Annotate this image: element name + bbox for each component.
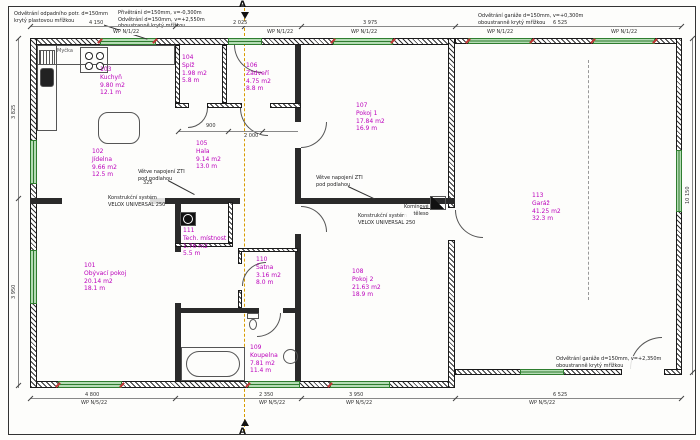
room-label-102: 102 Jídelna 9.66 m2 12.5 m (92, 148, 117, 179)
dim-label: 6 525 (552, 393, 568, 398)
dim-label: 325 (142, 181, 154, 186)
note-line: pod podlahou (316, 182, 363, 189)
room-number: 109 (250, 344, 278, 352)
window-mark: WP N/5/22 (80, 401, 108, 406)
wall-pantry-left (175, 45, 180, 103)
room-label-104: 104 Spíž 1.98 m2 5.8 m (182, 54, 207, 85)
wall-tech-right (228, 202, 233, 243)
room-label-113: 113 Garáž 41.25 m2 32.3 m (532, 192, 561, 223)
dim-chain-top (30, 26, 682, 27)
window-bath-bottom (248, 381, 300, 388)
floor-plan-sheet: A A (0, 0, 700, 440)
room-number: 103 (100, 66, 125, 74)
leader-line (420, 208, 430, 209)
section-arrow-top-icon (241, 12, 249, 19)
note-line: Přivětrání d=150mm, v=-0,300m (118, 10, 205, 17)
room-number: 104 (182, 54, 207, 62)
room-area: 3.16 m2 (256, 272, 281, 280)
room-name: Šatna (256, 264, 281, 272)
dim-label: 4 800 (84, 393, 100, 398)
room-area: 7.81 m2 (250, 360, 278, 368)
note-line: těleso (404, 211, 429, 218)
room-perimeter: 13.0 m (196, 163, 221, 171)
toilet-bowl-icon (249, 319, 257, 330)
dim-label: 2 350 (258, 393, 274, 398)
wall-house-garage-upper (448, 38, 455, 208)
room-area: 41.25 m2 (532, 208, 561, 216)
section-marker-top: A (239, 1, 246, 10)
note-zti-right: Větve napojení ZTI pod podlahou (316, 175, 363, 188)
room-name: Tech. místnost (183, 235, 226, 243)
wall-bath-top-b (283, 308, 295, 313)
dim-chain-left (18, 38, 19, 388)
note-dishwasher: Myčka (57, 48, 73, 55)
wall-pantry-bottom-a (175, 103, 189, 108)
room-label-105: 105 Hala 9.14 m2 13.0 m (196, 140, 221, 171)
room-name: Obývací pokoj (84, 270, 126, 278)
room-name: Pokoj 2 (352, 276, 381, 284)
room-area: 4.75 m2 (246, 78, 271, 86)
room-name: Kuchyň (100, 74, 125, 82)
wall-hall-room1-lower (295, 148, 301, 198)
dim-label: 6 525 (552, 21, 568, 26)
room-number: 107 (356, 102, 385, 110)
room-number: 108 (352, 268, 381, 276)
room-perimeter: 8.0 m (256, 279, 281, 287)
washbasin-icon (283, 349, 298, 364)
dim-label: 3 825 (12, 104, 17, 120)
window-mark: WP N/1/22 (610, 30, 638, 35)
room-number: 106 (246, 62, 271, 70)
note-line: VELOX UNIVERSAL 250 (358, 220, 415, 227)
room-name: Hala (196, 148, 221, 156)
note-bottom-right: Odvětrání garáže d=150mm, v=+2,350m obou… (556, 356, 661, 369)
dim-label: 2 000 (243, 134, 259, 139)
note-line: Konstrukční systém (108, 195, 165, 202)
window-garage-top-1 (468, 38, 532, 44)
room-area: 20.14 m2 (84, 278, 126, 286)
room-area: 17.84 m2 (356, 118, 385, 126)
dim-label: 3 975 (362, 21, 378, 26)
room-label-111: 111 Tech. místnost 1.76 m2 5.5 m (183, 227, 226, 258)
garage-door-track-line (588, 60, 589, 300)
room-label-106: 106 Zádveří 4.75 m2 8.8 m (246, 62, 271, 93)
room-perimeter: 18.9 m (352, 291, 381, 299)
window-garage-right (676, 150, 682, 212)
room-name: Garáž (532, 200, 561, 208)
wall-house-garage-lower (448, 240, 455, 388)
window-dining-left (30, 140, 37, 184)
room-perimeter: 32.3 m (532, 215, 561, 223)
dim-chain-right (692, 38, 693, 375)
note-line: oboustranně krytý mřížkou (556, 363, 661, 370)
window-room1-top (333, 38, 393, 45)
room-number: 113 (532, 192, 561, 200)
section-arrow-bottom-icon (241, 419, 249, 426)
room-label-110: 110 Šatna 3.16 m2 8.0 m (256, 256, 281, 287)
window-mark: WP N/5/22 (258, 401, 286, 406)
window-living-left (30, 250, 37, 304)
room-perimeter: 18.1 m (84, 285, 126, 293)
room-perimeter: 11.4 m (250, 367, 278, 375)
room-name: Spíž (182, 62, 207, 70)
room-perimeter: 12.1 m (100, 89, 125, 97)
window-mark: WP N/5/22 (345, 401, 373, 406)
section-marker-bottom: A (239, 428, 246, 437)
room-number: 110 (256, 256, 281, 264)
bathtub-inner (186, 351, 240, 377)
window-garage-bottom (520, 369, 564, 375)
room-label-109: 109 Koupelna 7.81 m2 11.4 m (250, 344, 278, 375)
window-room2-bottom (330, 381, 390, 388)
dim-line-inner (178, 131, 298, 132)
fridge-icon (39, 50, 55, 65)
note-line: Odvětrání garáže d=150mm, v=+0,300m (478, 13, 583, 20)
wall-middle-a (30, 198, 62, 204)
dim-label: 900 (205, 124, 217, 129)
room-perimeter: 12.5 m (92, 171, 117, 179)
wall-entry-bottom (270, 103, 301, 108)
wall-hall-room1-upper (295, 45, 301, 122)
dim-chain-bottom (30, 398, 682, 399)
room-perimeter: 5.5 m (183, 250, 226, 258)
dim-label: 3 950 (348, 393, 364, 398)
room-label-108: 108 Pokoj 2 21.63 m2 18.9 m (352, 268, 381, 299)
room-area: 21.63 m2 (352, 284, 381, 292)
room-area: 9.80 m2 (100, 82, 125, 90)
note-line: VELOX UNIVERSAL 250 (108, 202, 165, 209)
wall-garage-bottom-right (664, 369, 682, 375)
room-number: 105 (196, 140, 221, 148)
wall-pantry-bottom-b (207, 103, 242, 108)
window-kitchen-top (100, 38, 156, 45)
room-label-101: 101 Obývací pokoj 20.14 m2 18.1 m (84, 262, 126, 293)
wall-pantry-right (222, 45, 227, 103)
room-area: 1.98 m2 (182, 70, 207, 78)
note-line: Větve napojení ZTI (316, 175, 363, 182)
window-garage-top-2 (593, 38, 655, 44)
window-living-bottom (58, 381, 122, 388)
window-mark: WP N/5/22 (528, 401, 556, 406)
dim-label: 2 025 (232, 21, 248, 26)
room-label-107: 107 Pokoj 1 17.84 m2 16.9 m (356, 102, 385, 133)
room-label-103: 103 Kuchyň 9.80 m2 12.1 m (100, 66, 125, 97)
note-line: Odvětrání odpadního potr. d=150mm (14, 11, 108, 18)
wall-closet-top (238, 248, 298, 252)
dim-label: 10 150 (686, 186, 691, 206)
room-number: 111 (183, 227, 226, 235)
room-perimeter: 16.9 m (356, 125, 385, 133)
note-chimney: Komínové těleso (404, 204, 429, 217)
sink-icon (40, 68, 54, 87)
entry-door-glazing (228, 38, 262, 45)
note-line: Odvětrání garáže d=150mm, v=+2,350m (556, 356, 661, 363)
wall-house-left (30, 38, 37, 388)
window-mark: WP N/1/22 (486, 30, 514, 35)
room-number: 101 (84, 262, 126, 270)
window-mark: WP N/1/22 (112, 30, 140, 35)
wall-closet-left-b (238, 290, 242, 308)
window-mark: WP N/1/22 (266, 30, 294, 35)
room-area: 1.76 m2 (183, 243, 226, 251)
room-perimeter: 5.8 m (182, 77, 207, 85)
boiler-circle (183, 214, 193, 224)
note-velox-left: Konstrukční systém VELOX UNIVERSAL 250 (108, 195, 165, 208)
room-name: Koupelna (250, 352, 278, 360)
chimney-icon (430, 196, 446, 210)
room-number: 102 (92, 148, 117, 156)
note-line: Větve napojení ZTI (138, 169, 185, 176)
dim-label: 4 150 (88, 21, 104, 26)
room-name: Pokoj 1 (356, 110, 385, 118)
dining-table-icon (98, 112, 140, 144)
room-area: 9.66 m2 (92, 164, 117, 172)
dim-label: 3 950 (12, 284, 17, 300)
room-name: Jídelna (92, 156, 117, 164)
window-mark: WP N/1/22 (350, 30, 378, 35)
room-name: Zádveří (246, 70, 271, 78)
room-area: 9.14 m2 (196, 156, 221, 164)
room-perimeter: 8.8 m (246, 85, 271, 93)
